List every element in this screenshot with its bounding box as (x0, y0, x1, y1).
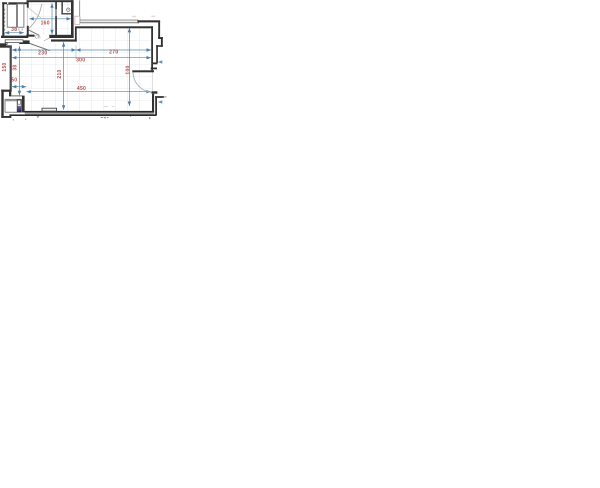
svg-text:270: 270 (109, 49, 118, 55)
svg-text:100: 100 (126, 65, 132, 74)
svg-text:160: 160 (41, 20, 50, 26)
svg-text:38: 38 (11, 27, 17, 33)
svg-text:450: 450 (77, 86, 86, 92)
svg-text:210: 210 (57, 69, 63, 78)
svg-text:38: 38 (13, 65, 19, 71)
svg-text:Ch: Ch (35, 35, 41, 40)
svg-text:150: 150 (2, 62, 8, 71)
svg-text:300: 300 (76, 58, 85, 64)
svg-text:230: 230 (38, 50, 47, 56)
svg-text:50: 50 (11, 78, 17, 84)
